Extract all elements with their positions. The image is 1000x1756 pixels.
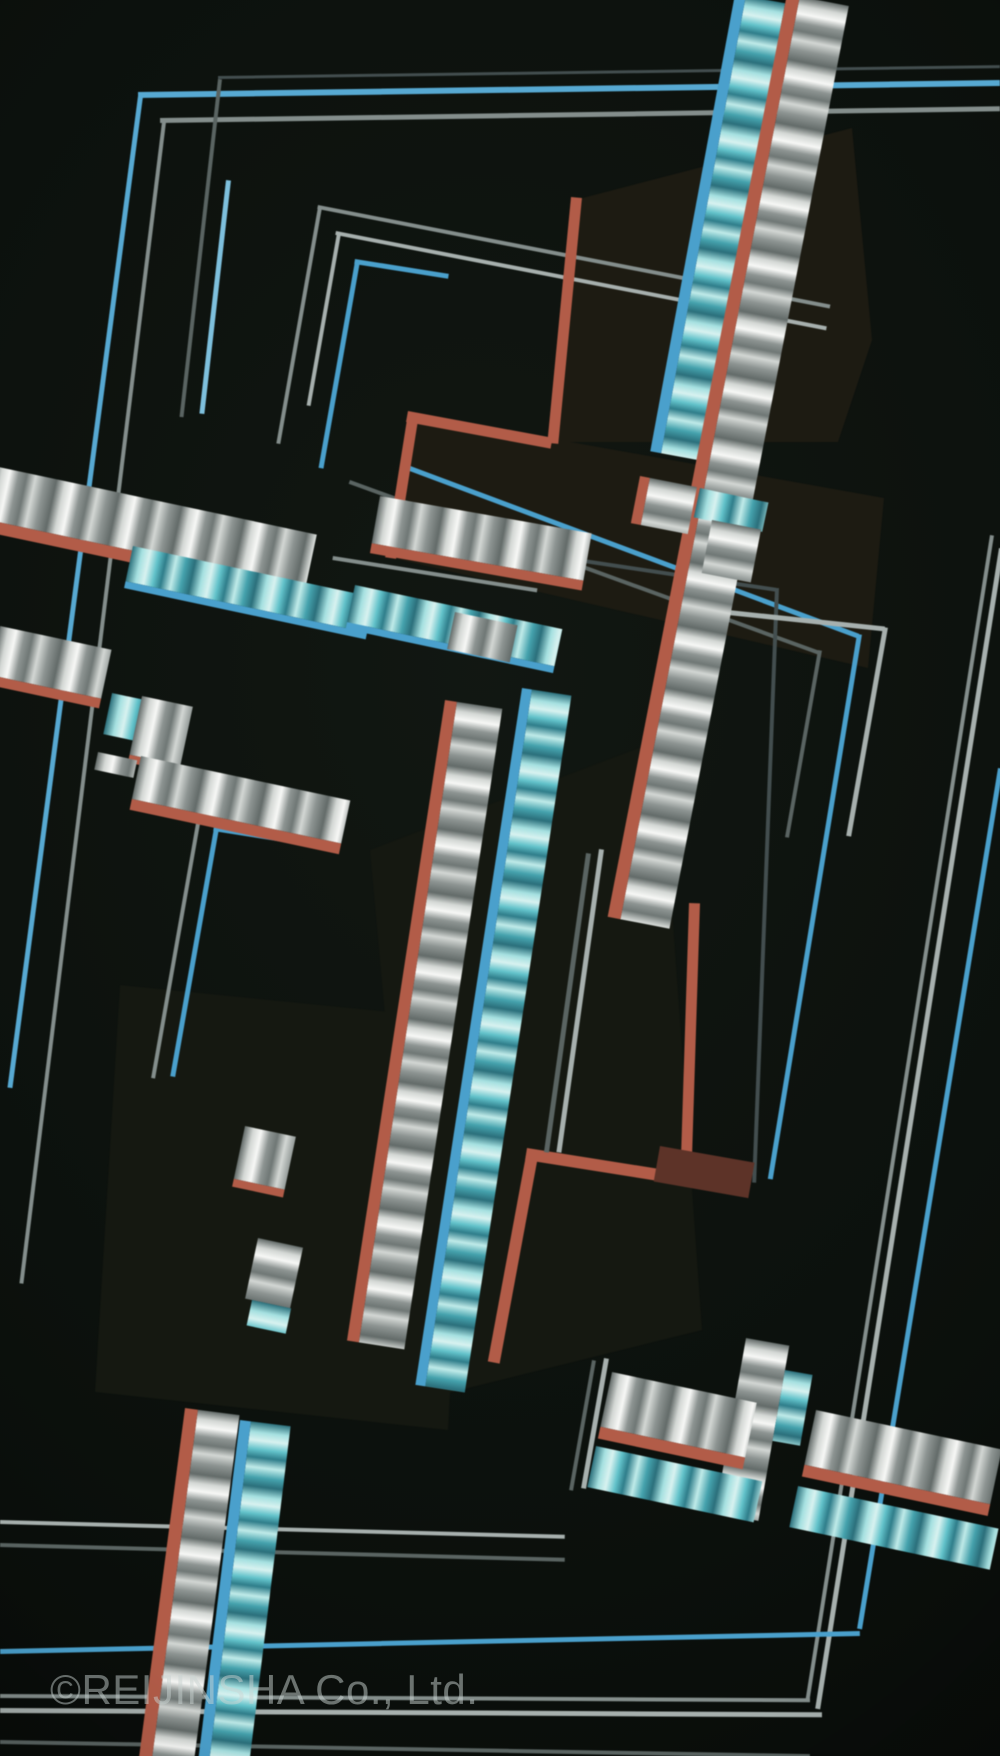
bottom-frame-blue-h	[0, 1631, 860, 1654]
jog-white-2	[702, 520, 761, 583]
bottom-frame-gray-h3	[0, 1740, 810, 1756]
frame-line-left-darkgray	[180, 79, 222, 417]
frame-line-left-blue	[7, 96, 142, 1088]
fragment-white-a	[0, 626, 112, 708]
inner-corner-gray-v	[276, 207, 322, 444]
frame-line-top-darkgray	[218, 65, 1000, 79]
artwork-scene	[0, 0, 1000, 1756]
apex-leg-darkgray	[785, 650, 822, 838]
inner-corner-blue-h	[354, 259, 449, 278]
apex-leg-deepgray	[752, 588, 779, 1183]
inner-corner-blue-v	[319, 261, 360, 469]
frame-line-top-gray	[160, 106, 1000, 123]
watermark-text: ©REIJINSHA Co., Ltd.	[50, 1666, 478, 1714]
red-line-mid-v	[681, 903, 700, 1159]
band-midleft-long-white	[130, 756, 351, 854]
bottom-gray-pair-h2	[0, 1543, 565, 1562]
frame-line-top-blue	[138, 80, 1000, 98]
bottom-gray-pair-h1	[0, 1520, 565, 1539]
apex-leg-blue	[768, 634, 862, 1180]
artwork-photo: ©REIJINSHA Co., Ltd.	[0, 0, 1000, 1756]
